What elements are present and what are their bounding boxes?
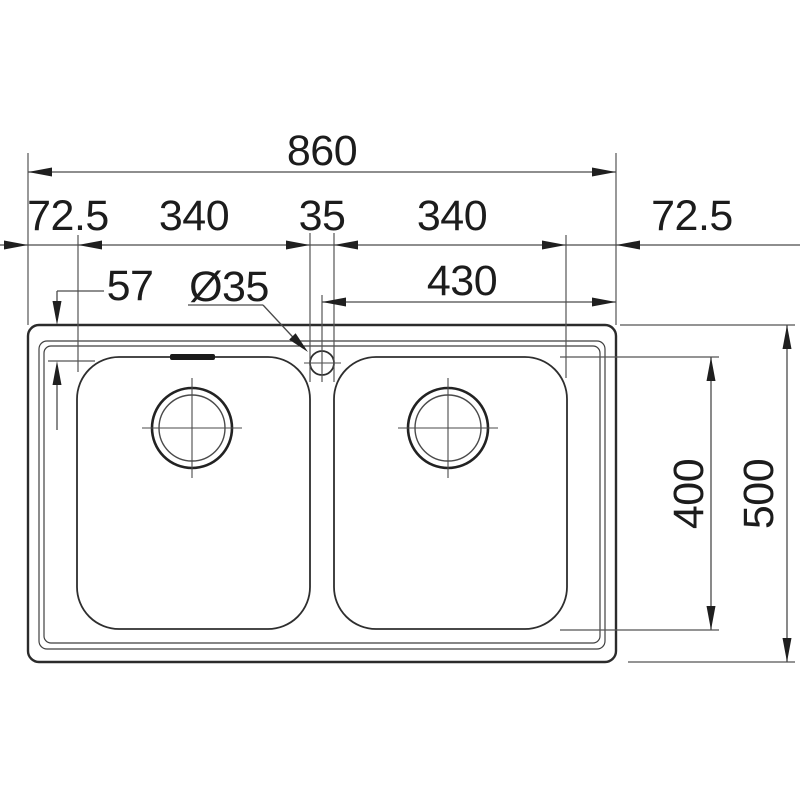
dim-overall-width-label: 860 [287, 127, 357, 175]
dim-rim-to-bowl-label: 57 [107, 262, 154, 310]
dim-overall-depth-label: 500 [735, 459, 783, 529]
dim-centre-to-edge-label: 430 [427, 257, 497, 305]
arrow-left-icon [28, 168, 52, 177]
overflow-slot [170, 354, 215, 360]
dim-bowl-gap-label: 35 [299, 192, 346, 240]
arrow-down-icon [53, 301, 62, 325]
dim-segment-row: 72.5 340 35 340 72.5 [0, 192, 800, 250]
arrow-up-icon [783, 325, 792, 349]
technical-drawing-canvas: 860 72.5 340 35 340 72.5 430 Ø35 57 [0, 0, 800, 800]
arrow-up-icon [707, 357, 716, 381]
arrow-left-icon [616, 241, 640, 250]
dim-bowl-depth-label: 400 [665, 459, 713, 529]
dim-left-bowl-width-label: 340 [159, 192, 229, 240]
sink-dimension-drawing: 860 72.5 340 35 340 72.5 430 Ø35 57 [0, 0, 800, 800]
arrow-left-icon [334, 241, 358, 250]
arrow-right-icon [4, 241, 28, 250]
arrow-down-icon [783, 638, 792, 662]
dim-left-margin-label: 72.5 [27, 192, 109, 240]
arrow-right-icon [592, 168, 616, 177]
dim-tap-hole-label: Ø35 [189, 263, 269, 311]
arrow-down-icon [707, 606, 716, 630]
dim-overall-width: 860 [28, 127, 616, 177]
dim-right-bowl-width-label: 340 [417, 192, 487, 240]
dim-centre-to-edge: 430 [322, 257, 616, 307]
arrow-right-icon [592, 298, 616, 307]
arrow-right-icon [286, 241, 310, 250]
dim-right-margin-label: 72.5 [651, 192, 733, 240]
dim-bowl-depth: 400 [665, 357, 716, 630]
arrow-right-icon [542, 241, 566, 250]
dim-overall-depth: 500 [735, 325, 792, 662]
arrow-left-icon [78, 241, 102, 250]
